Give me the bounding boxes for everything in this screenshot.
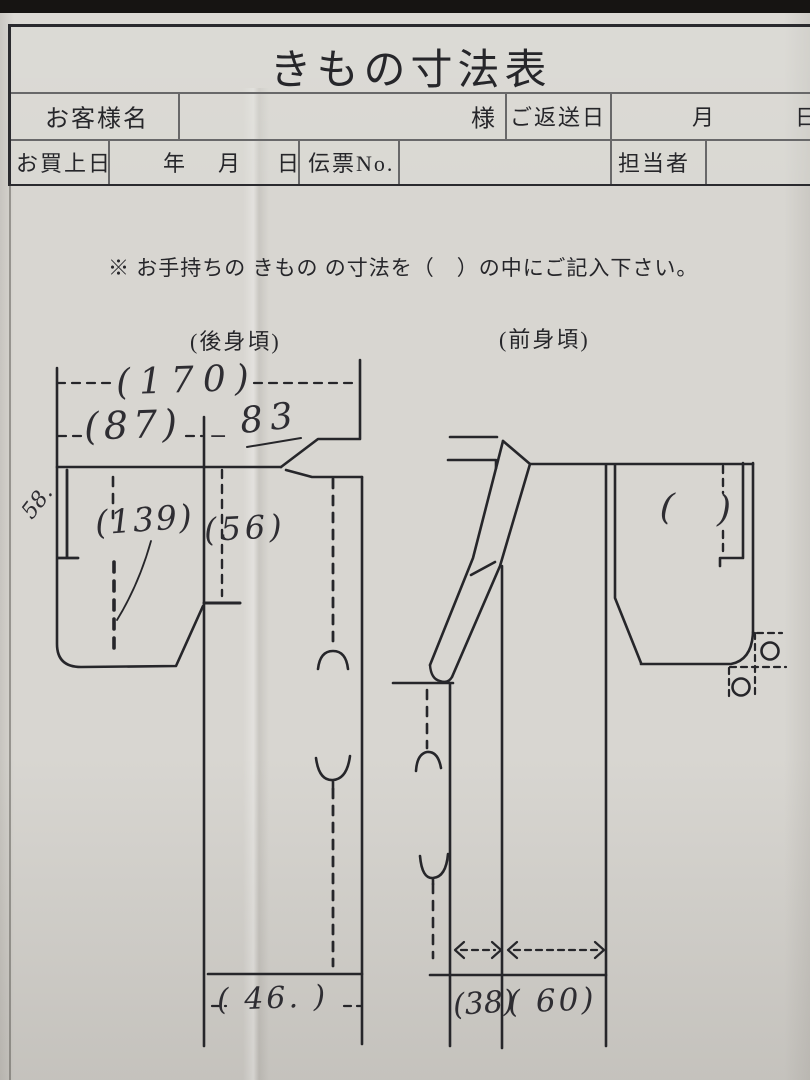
purchase-month-label: 月 <box>218 146 242 178</box>
return-date-label: ご返送日 <box>510 100 606 132</box>
back-collar-step-lower <box>286 470 362 477</box>
staff-label: 担当者 <box>618 146 690 178</box>
scan-edge-band <box>0 0 810 13</box>
back-break-hook-top <box>318 651 348 669</box>
front-collar-fold-line2 <box>448 460 496 468</box>
purchase-date-label: お買上日 <box>16 146 112 178</box>
front-panel-label: (前身頃) <box>499 322 590 354</box>
paper-edge-shadow <box>9 186 11 1080</box>
front-break-hook-top <box>416 752 441 771</box>
front-collar-inner-edge <box>430 441 503 665</box>
instruction-note: ※ お手持ちの きもの の寸法を（ ）の中にご記入下さい。 <box>108 252 698 282</box>
return-month-label: 月 <box>692 100 716 132</box>
front-sleeve-inner-edge <box>615 465 641 663</box>
back-break-hook-bottom <box>316 756 350 789</box>
purchase-date-field: 年 月 日 <box>108 139 300 186</box>
purchase-date-label-cell: お買上日 <box>8 139 110 186</box>
customer-suffix: 様 <box>471 98 497 133</box>
kimono-measurement-form: きもの寸法表 お客様名 様 ご返送日 月 日 お買上日 年 月 日 伝票No. … <box>0 0 810 1080</box>
form-title: きもの寸法表 <box>11 27 810 97</box>
slip-no-label-cell: 伝票No. <box>298 139 400 186</box>
sleeve-roundness-circle-1 <box>762 643 779 660</box>
hw-front-width-38: (38) <box>452 984 516 1023</box>
sleeve-roundness-circle-2 <box>733 679 750 696</box>
hw-empty-paren-open: ( <box>659 487 676 529</box>
slip-no-field <box>398 139 612 186</box>
purchase-year-label: 年 <box>163 146 187 178</box>
back-sleeve-length-bracket <box>58 470 78 558</box>
hw-value-139: (139) <box>94 497 195 543</box>
customer-name-field: 様 <box>178 92 507 141</box>
front-collar-seam <box>471 562 495 575</box>
front-collar-outer-edge <box>452 464 530 677</box>
return-day-label: 日 <box>795 100 810 132</box>
hw-empty-paren-close: ) <box>717 489 731 530</box>
staff-label-cell: 担当者 <box>610 139 707 186</box>
roundness-guide-dashes <box>729 633 786 701</box>
hw-dash-mark: − <box>209 424 227 449</box>
customer-name-label: お客様名 <box>45 98 149 133</box>
front-width-arrow-1-heads <box>455 942 501 958</box>
hw-hem-width-46: ( 46. ) <box>216 979 328 1018</box>
front-collar-tip <box>430 665 452 682</box>
paper-crease <box>243 88 269 1080</box>
customer-name-label-cell: お客様名 <box>8 92 180 141</box>
front-sleeve-bottom <box>641 632 753 664</box>
back-panel-drawing <box>57 360 362 1046</box>
front-collar-top <box>503 441 530 464</box>
front-width-arrow-2-heads <box>508 942 604 958</box>
return-date-field: 月 日 <box>610 92 810 141</box>
hw-value-83: 83 <box>238 395 302 442</box>
back-panel-label: (後身頃) <box>190 324 281 356</box>
hw-sleeve-length-58: 58. <box>17 481 58 524</box>
hw-value-56: (56) <box>203 507 287 549</box>
hw-139-tail <box>117 541 151 620</box>
hw-value-60: ( 60) <box>507 981 597 1020</box>
staff-field <box>705 139 810 186</box>
return-date-label-cell: ご返送日 <box>505 92 612 141</box>
hw-back-width-87: (87) <box>83 401 182 448</box>
title-box: きもの寸法表 <box>8 24 810 94</box>
front-break-hook-bottom <box>420 854 448 884</box>
slip-no-label: 伝票No. <box>308 146 394 178</box>
hw-back-total-width: (170) <box>115 358 258 404</box>
